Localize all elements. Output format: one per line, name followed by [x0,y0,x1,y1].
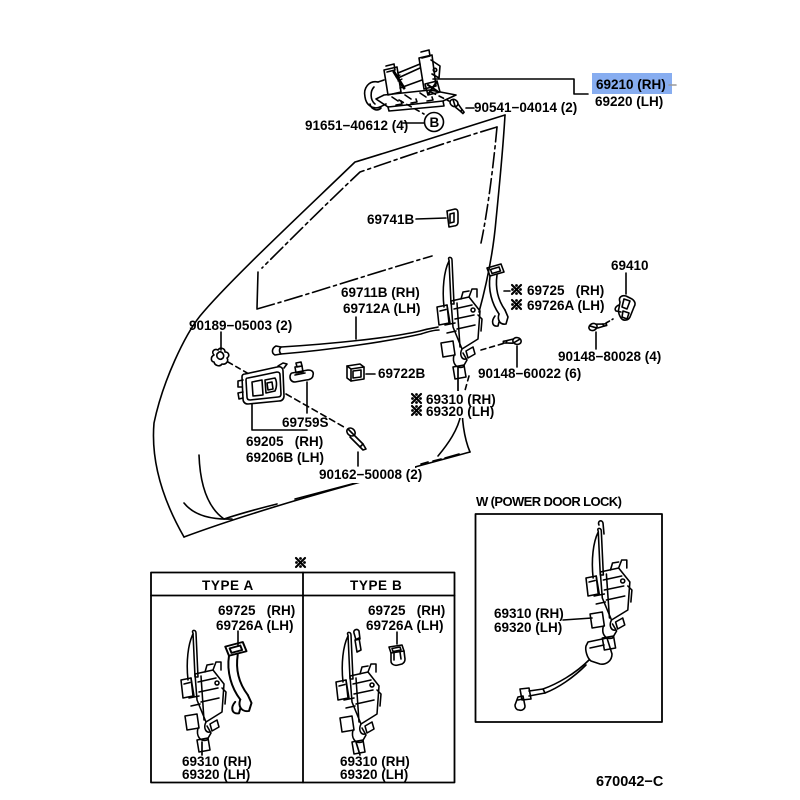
svg-text:69320 (LH): 69320 (LH) [494,620,562,635]
svg-text:90541−04014 (2): 90541−04014 (2) [474,100,577,115]
svg-text:90189−05003 (2): 90189−05003 (2) [189,318,292,333]
svg-text:W (POWER DOOR LOCK): W (POWER DOOR LOCK) [476,494,622,509]
svg-text:91651−40612 (4): 91651−40612 (4) [305,118,408,133]
svg-text:69726A (LH): 69726A (LH) [216,618,294,633]
svg-text:69722B: 69722B [378,366,426,381]
svg-text:90148−80028 (4): 90148−80028 (4) [558,349,661,364]
svg-text:69220 (LH): 69220 (LH) [595,94,663,109]
svg-text:B: B [430,115,440,130]
svg-text:69759S: 69759S [282,415,329,430]
svg-text:90148−60022 (6): 90148−60022 (6) [478,366,581,381]
svg-text:69210 (RH): 69210 (RH) [596,77,666,92]
svg-text:69712A (LH): 69712A (LH) [343,301,421,316]
svg-text:69205 (RH): 69205 (RH) [246,434,323,449]
svg-text:TYPE B: TYPE B [350,578,402,593]
svg-text:69725 (RH): 69725 (RH) [218,603,295,618]
svg-text:69741B: 69741B [367,212,415,227]
svg-text:69410: 69410 [611,258,649,273]
svg-text:69726A (LH): 69726A (LH) [527,298,605,313]
svg-text:69310 (RH): 69310 (RH) [494,606,564,621]
svg-text:69726A (LH): 69726A (LH) [366,618,444,633]
svg-text:90162−50008 (2): 90162−50008 (2) [319,467,422,482]
svg-text:69725 (RH): 69725 (RH) [368,603,445,618]
svg-text:69320 (LH): 69320 (LH) [426,404,494,419]
svg-text:670042−C: 670042−C [596,774,664,790]
svg-text:69206B (LH): 69206B (LH) [246,450,324,465]
svg-text:TYPE A: TYPE A [202,578,254,593]
svg-text:69711B (RH): 69711B (RH) [341,285,420,300]
svg-text:69320 (LH): 69320 (LH) [340,767,408,782]
svg-text:69320 (LH): 69320 (LH) [182,767,250,782]
svg-text:69725 (RH): 69725 (RH) [527,283,604,298]
